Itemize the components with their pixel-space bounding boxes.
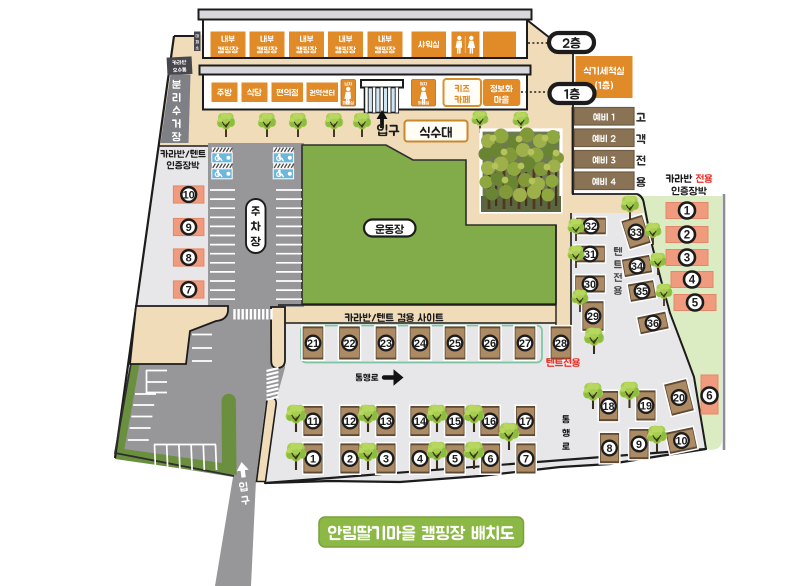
svg-text:8: 8: [186, 252, 192, 264]
svg-text:18: 18: [602, 401, 614, 413]
svg-text:25: 25: [449, 338, 461, 350]
svg-text:7: 7: [523, 453, 529, 465]
svg-text:3: 3: [383, 453, 389, 465]
svg-text:19: 19: [640, 400, 652, 412]
svg-text:30: 30: [584, 279, 596, 291]
svg-text:5: 5: [452, 453, 458, 465]
svg-text:26: 26: [484, 338, 496, 350]
svg-text:29: 29: [587, 311, 599, 323]
svg-text:10: 10: [675, 435, 687, 447]
svg-text:34: 34: [631, 261, 643, 273]
svg-text:4: 4: [417, 453, 423, 465]
svg-text:1: 1: [310, 453, 316, 465]
svg-text:14: 14: [414, 416, 426, 428]
svg-text:20: 20: [673, 392, 685, 404]
svg-text:2: 2: [684, 230, 690, 242]
svg-text:2: 2: [347, 453, 353, 465]
svg-text:9: 9: [636, 439, 642, 451]
svg-text:12: 12: [344, 416, 356, 428]
svg-text:11: 11: [307, 416, 318, 428]
svg-text:32: 32: [585, 221, 597, 233]
svg-text:21: 21: [307, 338, 319, 350]
svg-text:36: 36: [647, 318, 659, 330]
svg-text:22: 22: [343, 338, 355, 350]
svg-text:8: 8: [606, 443, 612, 455]
svg-text:27: 27: [519, 338, 531, 350]
svg-text:13: 13: [380, 416, 392, 428]
svg-text:1: 1: [684, 206, 691, 218]
svg-text:16: 16: [484, 416, 496, 428]
svg-text:23: 23: [380, 338, 392, 350]
svg-text:6: 6: [706, 391, 712, 403]
svg-text:35: 35: [636, 286, 648, 298]
svg-text:4: 4: [689, 275, 696, 287]
svg-text:28: 28: [555, 338, 567, 350]
svg-text:15: 15: [449, 416, 461, 428]
svg-text:9: 9: [186, 222, 192, 234]
svg-text:7: 7: [186, 284, 192, 296]
svg-text:17: 17: [519, 416, 531, 428]
svg-text:3: 3: [684, 253, 690, 265]
svg-text:24: 24: [414, 338, 426, 350]
svg-text:5: 5: [692, 298, 699, 310]
svg-text:10: 10: [183, 189, 195, 201]
svg-text:31: 31: [584, 249, 596, 261]
svg-text:33: 33: [630, 227, 642, 239]
svg-text:6: 6: [487, 453, 493, 465]
